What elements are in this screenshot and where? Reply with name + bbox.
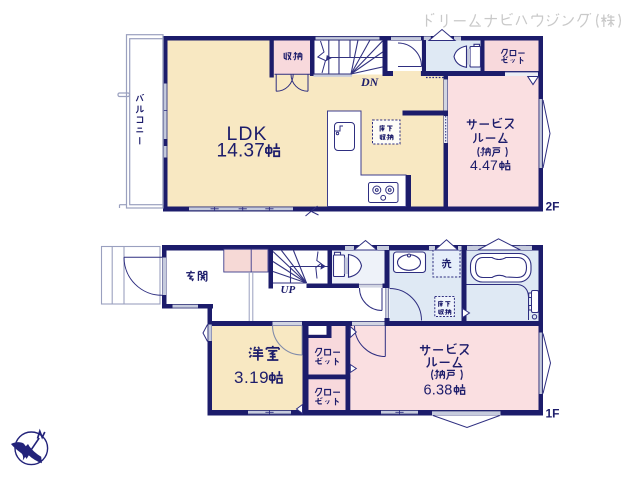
- svg-text:UP: UP: [281, 284, 296, 296]
- svg-text:2F: 2F: [546, 200, 560, 214]
- svg-text:1F: 1F: [546, 407, 560, 421]
- svg-text:14.37: 14.37: [217, 141, 266, 162]
- svg-text:DN: DN: [360, 75, 380, 89]
- svg-text:4.47: 4.47: [470, 157, 498, 173]
- svg-text:3.19: 3.19: [234, 368, 269, 387]
- svg-text:6.38: 6.38: [424, 383, 453, 399]
